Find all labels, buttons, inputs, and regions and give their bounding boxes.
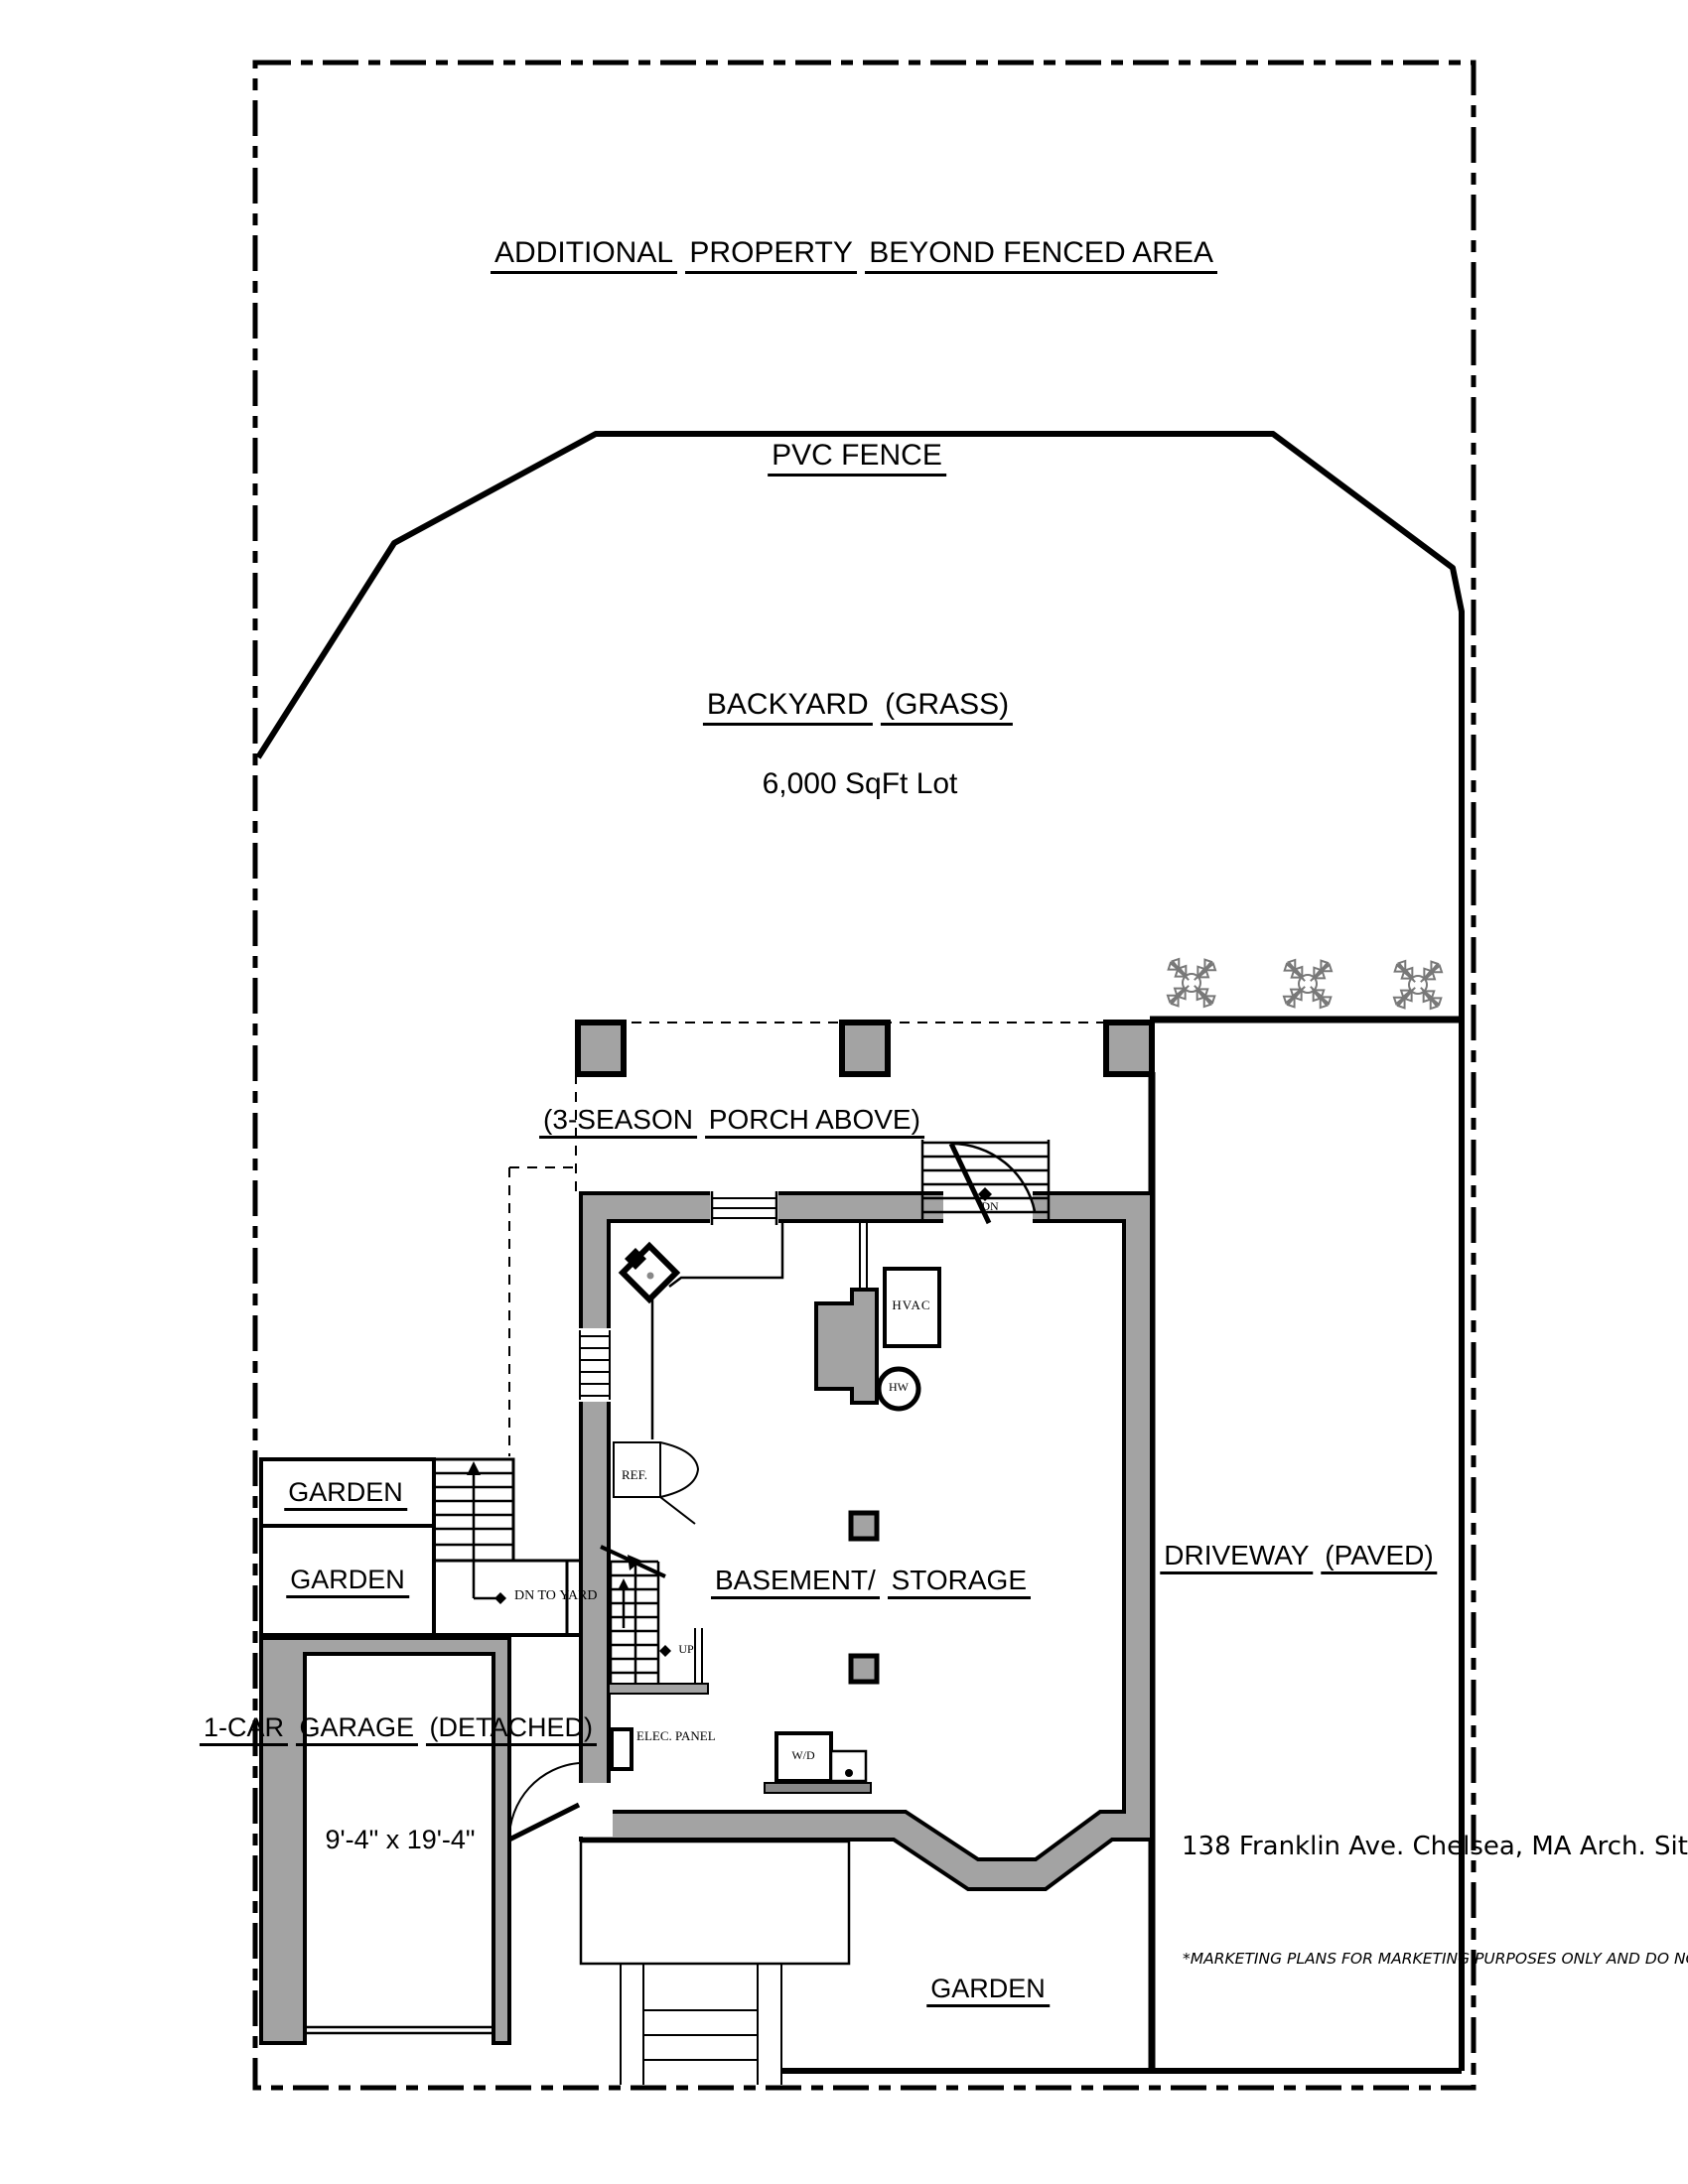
- washer-dryer-icon: [765, 1733, 871, 1793]
- garden-front-label: GARDEN: [926, 1974, 1050, 2010]
- column-post: [851, 1656, 877, 1682]
- hvac-label: HVAC: [892, 1298, 930, 1313]
- garage-dimensions: 9'-4" x 19'-4": [325, 1825, 475, 1854]
- shrub-row: [1165, 956, 1445, 1012]
- disclaimer-note: *MARKETING PLANS FOR MARKETING PURPOSES …: [1183, 1949, 1688, 1969]
- refrigerator-icon: [614, 1442, 698, 1524]
- garage-label: 1-CAR GARAGE (DETACHED): [200, 1712, 597, 1749]
- up-label: UP: [678, 1643, 693, 1656]
- wd-label: W/D: [791, 1749, 814, 1762]
- yard-stairs-down: [434, 1461, 513, 1604]
- chimney-icon: [623, 1246, 676, 1299]
- dn-label: DN: [981, 1200, 998, 1213]
- interior-stairs-up: [601, 1547, 708, 1694]
- window-icon: [577, 1328, 613, 1402]
- elec-panel-label: ELEC. PANEL: [636, 1729, 716, 1744]
- porch-posts: [578, 1023, 1152, 1074]
- dn-to-yard-label: DN TO YARD: [514, 1588, 598, 1604]
- window-icon: [710, 1188, 778, 1230]
- pvc-fence-label: PVC FENCE: [768, 439, 946, 479]
- porch-label: (3-SEASON PORCH ABOVE): [539, 1104, 924, 1142]
- driveway-label: DRIVEWAY (PAVED): [1160, 1540, 1437, 1577]
- lot-size-label: 6,000 SqFt Lot: [763, 767, 958, 801]
- front-entry: [581, 1842, 849, 2085]
- basement-label: BASEMENT/ STORAGE: [711, 1565, 1031, 1602]
- column-post: [851, 1513, 877, 1539]
- garden-upper-label: GARDEN: [284, 1477, 407, 1514]
- address-block: 138 Franklin Ave. Chelsea, MA Arch. Site…: [1182, 1832, 1688, 1861]
- furnace-mass: [816, 1290, 877, 1403]
- hw-label: HW: [889, 1381, 909, 1394]
- additional-property-label: ADDITIONAL PROPERTY BEYOND FENCED AREA: [491, 236, 1217, 277]
- door-swing: [509, 1763, 579, 1840]
- site-plan: ADDITIONAL PROPERTY BEYOND FENCED AREA P…: [0, 0, 1688, 2184]
- ref-label: REF.: [622, 1468, 647, 1483]
- backyard-label: BACKYARD (GRASS): [703, 688, 1013, 729]
- garden-lower-label: GARDEN: [286, 1565, 409, 1601]
- electrical-panel-icon: [612, 1729, 632, 1769]
